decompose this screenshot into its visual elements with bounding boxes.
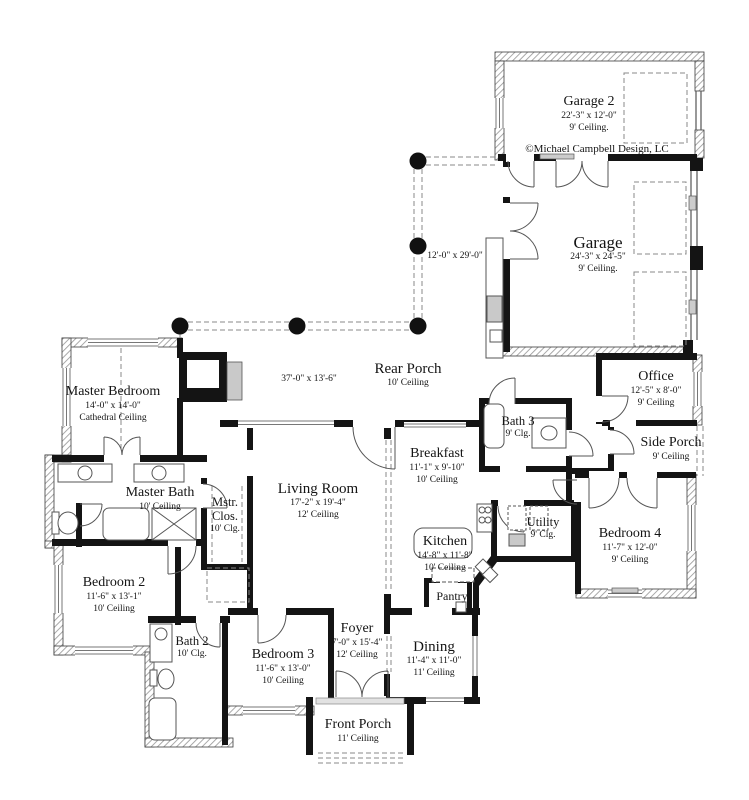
room-ceiling: 9' Ceiling xyxy=(640,451,701,463)
room-name: Bedroom 2 xyxy=(83,575,146,591)
room-dims: 11'-7" x 12'-0" xyxy=(599,542,662,554)
room-ceiling: 9' Clg. xyxy=(502,428,535,440)
room-name: Rear Porch xyxy=(374,361,441,377)
room-label-mstr-clos: Mstr. Clos. 10' Clg. xyxy=(210,495,240,535)
room-ceiling: 12' Ceiling xyxy=(278,509,358,521)
room-label-bedroom4: Bedroom 4 11'-7" x 12'-0" 9' Ceiling xyxy=(599,526,662,566)
room-name: Side Porch xyxy=(640,435,701,451)
room-label-master-bedroom: Master Bedroom 14'-0" x 14'-0" Cathedral… xyxy=(66,384,160,424)
floor-plan: Garage 2 22'-3" x 12'-0" 9' Ceiling. ©Mi… xyxy=(0,0,749,800)
room-ceiling: 10' Ceiling xyxy=(126,501,195,513)
room-name: Office xyxy=(631,369,682,385)
room-ceiling: 10' Ceiling xyxy=(409,474,464,486)
room-label-foyer: Foyer 7'-0" x 15'-4" 12' Ceiling xyxy=(332,621,383,661)
room-ceiling: 9' Ceiling. xyxy=(561,122,617,134)
room-dims: 11'-4" x 11'-0" xyxy=(407,655,462,667)
room-name: Mstr. xyxy=(210,495,240,509)
room-ceiling: 10' Clg. xyxy=(176,648,209,660)
room-dims: 17'-2" x 19'-4" xyxy=(278,497,358,509)
porch-columns xyxy=(172,153,427,335)
room-name: Living Room xyxy=(278,481,358,497)
room-name: Kitchen xyxy=(417,534,472,550)
room-ceiling: 10' Ceiling xyxy=(252,675,315,687)
room-label-master-bath: Master Bath 10' Ceiling xyxy=(126,485,195,513)
room-dims: 22'-3" x 12'-0" xyxy=(561,110,617,122)
room-label-breakfast: Breakfast 11'-1" x 9'-10" 10' Ceiling xyxy=(409,446,464,486)
room-name: Bedroom 3 xyxy=(252,647,315,663)
room-dims: 14'-0" x 14'-0" xyxy=(66,400,160,412)
room-label-office: Office 12'-5" x 8'-0" 9' Ceiling xyxy=(631,369,682,409)
room-label-rear-porch: Rear Porch 10' Ceiling xyxy=(374,361,441,389)
room-name: Utility xyxy=(527,515,560,529)
fireplace xyxy=(179,352,242,402)
room-label-garage: Garage 24'-3" x 24'-5" 9' Ceiling. xyxy=(570,235,626,275)
room-label-side-porch: Side Porch 9' Ceiling xyxy=(640,435,701,463)
room-ceiling: 11' Ceiling xyxy=(407,667,462,679)
room-label-bedroom3: Bedroom 3 11'-6" x 13'-0" 10' Ceiling xyxy=(252,647,315,687)
room-name: Master Bath xyxy=(126,485,195,501)
room-dims: 11'-1" x 9'-10" xyxy=(409,462,464,474)
room-ceiling: Cathedral Ceiling xyxy=(66,412,160,424)
porch-run-dimension: 12'-0" x 29'-0" xyxy=(427,250,483,262)
room-label-dining: Dining 11'-4" x 11'-0" 11' Ceiling xyxy=(407,639,462,679)
rear-porch-dimension: 37'-0" x 13'-6" xyxy=(281,373,337,385)
room-label-kitchen: Kitchen 14'-8" x 11'-8" 10' Ceiling xyxy=(417,534,472,574)
room-ceiling: 11' Ceiling xyxy=(325,733,392,745)
room-dims: 12'-5" x 8'-0" xyxy=(631,385,682,397)
room-label-bedroom2: Bedroom 2 11'-6" x 13'-1" 10' Ceiling xyxy=(83,575,146,615)
room-ceiling: 10' Ceiling xyxy=(417,562,472,574)
room-ceiling: 12' Ceiling xyxy=(332,649,383,661)
room-ceiling: 10' Ceiling xyxy=(374,377,441,389)
room-name: Foyer xyxy=(332,621,383,637)
room-name: Master Bedroom xyxy=(66,384,160,400)
room-name: Bath 3 xyxy=(502,414,535,428)
room-ceiling: 9' Ceiling xyxy=(599,554,662,566)
room-label-front-porch: Front Porch 11' Ceiling xyxy=(325,717,392,745)
room-name: Garage xyxy=(570,235,626,251)
room-label-pantry: Pantry xyxy=(436,590,467,603)
room-ceiling: 9' Clg. xyxy=(527,529,560,541)
room-name: Bath 2 xyxy=(176,634,209,648)
room-name: Breakfast xyxy=(409,446,464,462)
room-ceiling: 10' Clg. xyxy=(210,523,240,535)
room-name: Front Porch xyxy=(325,717,392,733)
room-dims: 14'-8" x 11'-8" xyxy=(417,550,472,562)
room-label-bath3: Bath 3 9' Clg. xyxy=(502,414,535,440)
room-label-garage2: Garage 2 22'-3" x 12'-0" 9' Ceiling. xyxy=(561,94,617,134)
copyright-text: ©Michael Campbell Design, LC xyxy=(525,143,668,155)
room-ceiling: 10' Ceiling xyxy=(83,603,146,615)
room-name: Garage 2 xyxy=(561,94,617,110)
room-name: Pantry xyxy=(436,590,467,603)
room-label-living-room: Living Room 17'-2" x 19'-4" 12' Ceiling xyxy=(278,481,358,521)
room-dims: 7'-0" x 15'-4" xyxy=(332,637,383,649)
room-name: Dining xyxy=(407,639,462,655)
room-ceiling: 9' Ceiling. xyxy=(570,263,626,275)
room-dims: 11'-6" x 13'-0" xyxy=(252,663,315,675)
room-label-bath2: Bath 2 10' Clg. xyxy=(176,634,209,660)
room-name-line2: Clos. xyxy=(210,509,240,523)
room-label-utility: Utility 9' Clg. xyxy=(527,515,560,541)
room-dims: 24'-3" x 24'-5" xyxy=(570,251,626,263)
room-dims: 11'-6" x 13'-1" xyxy=(83,591,146,603)
room-name: Bedroom 4 xyxy=(599,526,662,542)
room-ceiling: 9' Ceiling xyxy=(631,397,682,409)
